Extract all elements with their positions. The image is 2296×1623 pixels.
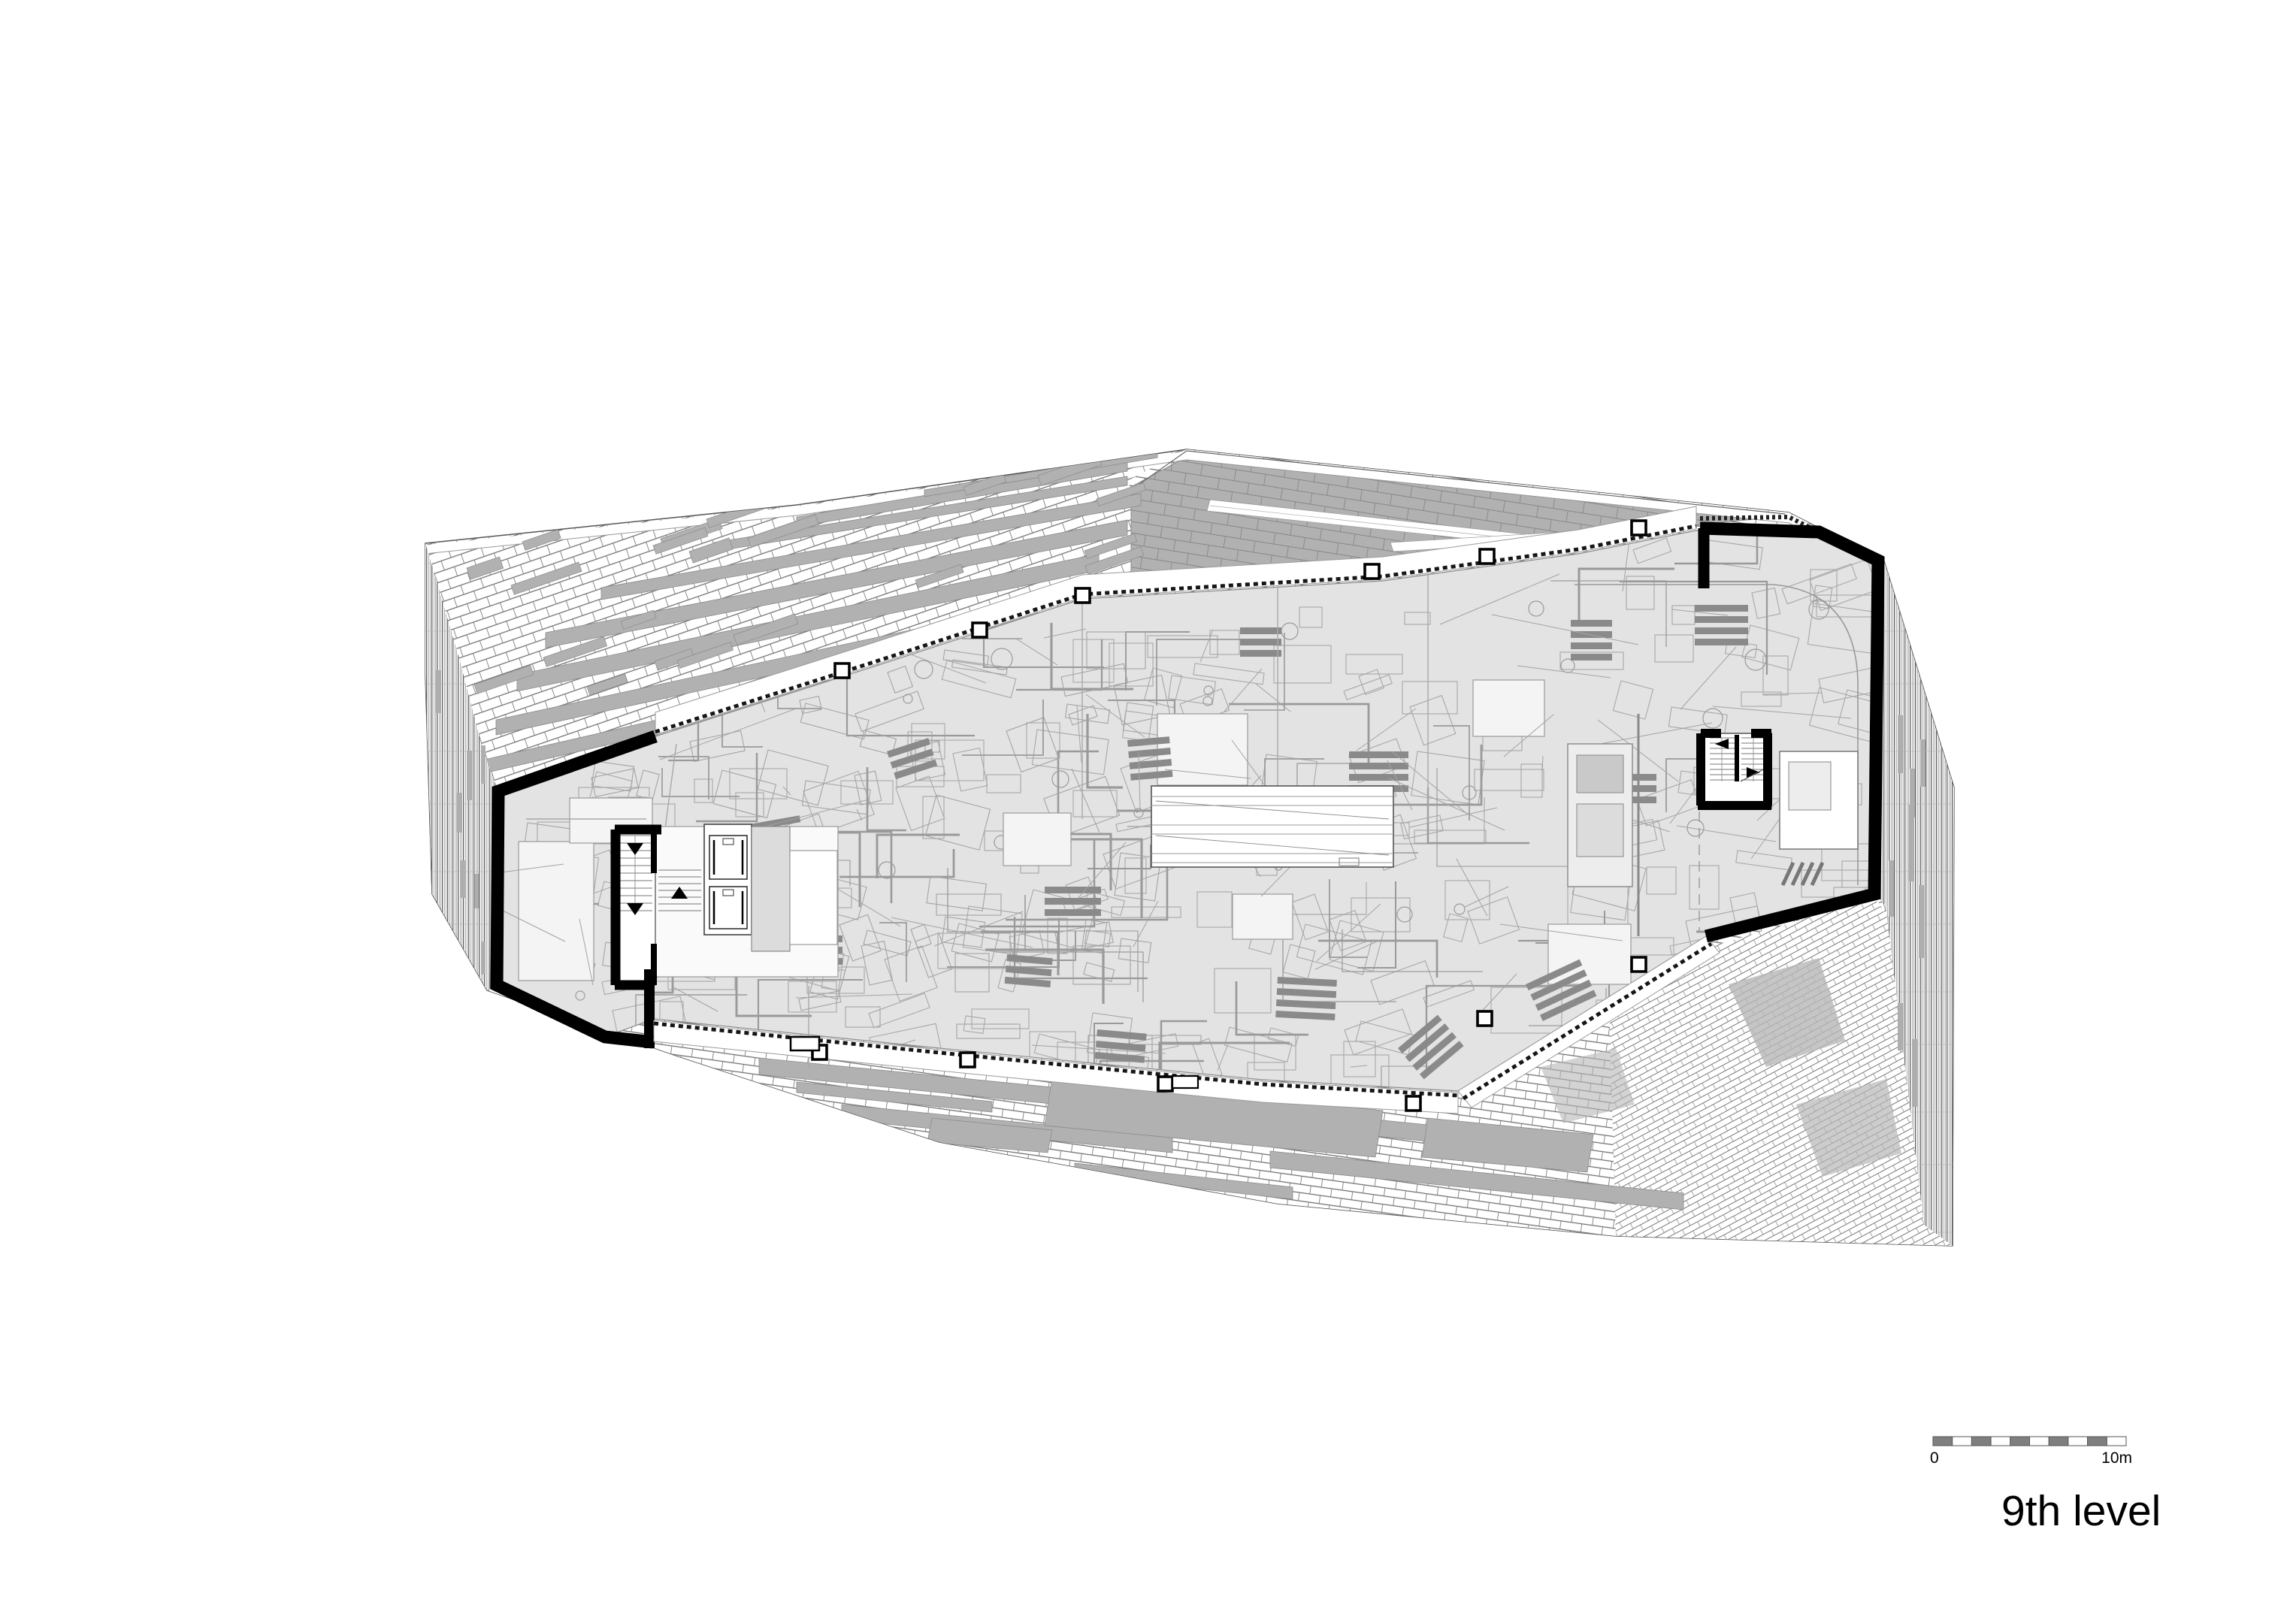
svg-text:9th level: 9th level	[2001, 1487, 2161, 1535]
svg-text:0: 0	[1930, 1449, 1939, 1467]
svg-text:10m: 10m	[2101, 1449, 2132, 1467]
